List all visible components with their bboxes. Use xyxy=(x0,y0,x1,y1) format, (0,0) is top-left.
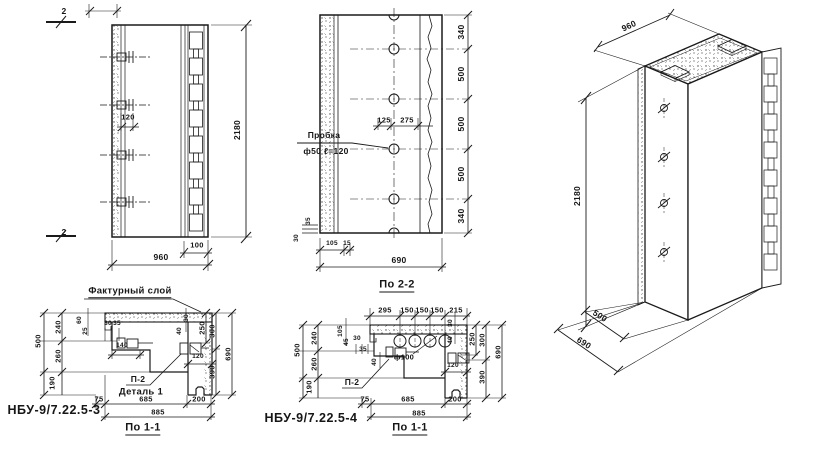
blueprint-sheet: 2 2 120 2180 100 960 Пробка ф50 ℓ=120 12… xyxy=(0,0,813,456)
section-cut-mark-bottom: 2 xyxy=(61,228,66,237)
iso-dim-width: 690 xyxy=(575,335,592,350)
d4-dim-75: 75 xyxy=(361,395,370,403)
d3-dim-40: 40 xyxy=(177,327,184,335)
d3-dim-120: 120 xyxy=(192,354,204,361)
d4-dim-300: 300 xyxy=(478,333,486,346)
d3-dim-240: 240 xyxy=(54,320,62,333)
dim-15: 15 xyxy=(343,241,351,248)
dim-125: 125 xyxy=(377,116,390,124)
d3-dim-30b: 30 xyxy=(184,314,191,322)
d3-dim-500: 500 xyxy=(34,334,42,347)
d3-dim-75: 75 xyxy=(95,395,104,403)
dim-height-2180: 2180 xyxy=(233,120,242,140)
d3-dim-60: 60 xyxy=(77,316,84,324)
iso-dim-top-width: 960 xyxy=(620,19,637,33)
d4-dim-685: 685 xyxy=(401,395,414,403)
d4-dim-150-c: 150 xyxy=(430,306,443,314)
d4-dim-240: 240 xyxy=(310,331,318,344)
dim-500-b: 500 xyxy=(457,116,466,131)
core-diameter-note: ф100 xyxy=(394,353,414,361)
d4-dim-215: 215 xyxy=(449,306,462,314)
dim-35: 35 xyxy=(306,217,313,225)
plug-note-line2: ф50 ℓ=120 xyxy=(303,147,348,156)
d4-dim-690: 690 xyxy=(494,345,502,358)
detail-3-section-title: По 1-1 xyxy=(125,423,160,436)
d3-dim-885: 885 xyxy=(151,408,164,416)
dim-500-c: 500 xyxy=(457,166,466,181)
d3-dim-260: 260 xyxy=(54,349,62,362)
d4-dim-500: 500 xyxy=(293,343,301,356)
d4-dim-190: 190 xyxy=(305,380,313,393)
d3-dim-25: 25 xyxy=(83,327,90,335)
d3-anchor-label-p2: П-2 xyxy=(131,375,146,384)
d4-dim-120: 120 xyxy=(447,363,459,370)
d3-dim-30: 30 xyxy=(104,321,112,328)
d3-detail-1-label: Деталь 1 xyxy=(119,387,163,397)
d4-dim-105: 105 xyxy=(338,325,345,337)
dim-105: 105 xyxy=(326,241,338,248)
d4-dim-30b: 30 xyxy=(448,319,455,327)
d4-dim-40b: 40 xyxy=(448,336,455,344)
dimension-labels-layer: 2 2 120 2180 100 960 Пробка ф50 ℓ=120 12… xyxy=(0,0,813,456)
d4-dim-885: 885 xyxy=(412,409,425,417)
dim-340-bottom: 340 xyxy=(457,208,466,223)
dim-width-690: 690 xyxy=(391,256,406,265)
d4-dim-390: 390 xyxy=(478,370,486,383)
dim-width-960: 960 xyxy=(153,253,168,262)
d4-dim-45: 45 xyxy=(344,338,351,346)
d3-dim-300: 300 xyxy=(208,324,216,337)
d3-dim-250: 250 xyxy=(198,321,206,334)
d4-dim-200: 200 xyxy=(448,395,461,403)
dim-100: 100 xyxy=(190,241,203,249)
d3-dim-690: 690 xyxy=(224,347,232,360)
d4-dim-150-b: 150 xyxy=(415,306,428,314)
section-cut-mark-top: 2 xyxy=(61,7,66,16)
dim-275: 275 xyxy=(400,116,413,124)
d3-dim-35: 35 xyxy=(113,321,121,328)
d4-dim-30: 30 xyxy=(353,336,361,343)
facture-layer-note: Фактурный слой xyxy=(88,286,171,298)
detail-4-title: НБУ-9/7.22.5-4 xyxy=(265,412,358,425)
d4-dim-260: 260 xyxy=(310,357,318,370)
d4-dim-250: 250 xyxy=(468,332,476,345)
plug-note-line1: Пробка xyxy=(308,131,341,140)
detail-4-section-title: По 1-1 xyxy=(392,423,427,436)
iso-dim-height: 2180 xyxy=(573,186,582,206)
d4-dim-40: 40 xyxy=(372,358,379,366)
dim-30: 30 xyxy=(294,234,301,242)
dim-340-top: 340 xyxy=(457,24,466,39)
detail-3-title: НБУ-9/7.22.5-3 xyxy=(8,404,101,417)
d4-dim-295: 295 xyxy=(378,306,391,314)
dim-120: 120 xyxy=(121,113,134,121)
d3-dim-200: 200 xyxy=(192,395,205,403)
d3-dim-190: 190 xyxy=(48,376,56,389)
d4-dim-150-a: 150 xyxy=(400,306,413,314)
d4-dim-35: 35 xyxy=(359,347,367,354)
d3-dim-140: 140 xyxy=(116,343,128,350)
iso-dim-depth: 500 xyxy=(591,308,608,323)
d3-dim-390: 390 xyxy=(208,365,216,378)
d4-anchor-label-p2: П-2 xyxy=(345,378,360,387)
dim-500-a: 500 xyxy=(457,66,466,81)
section-2-2-title: По 2-2 xyxy=(379,280,414,293)
